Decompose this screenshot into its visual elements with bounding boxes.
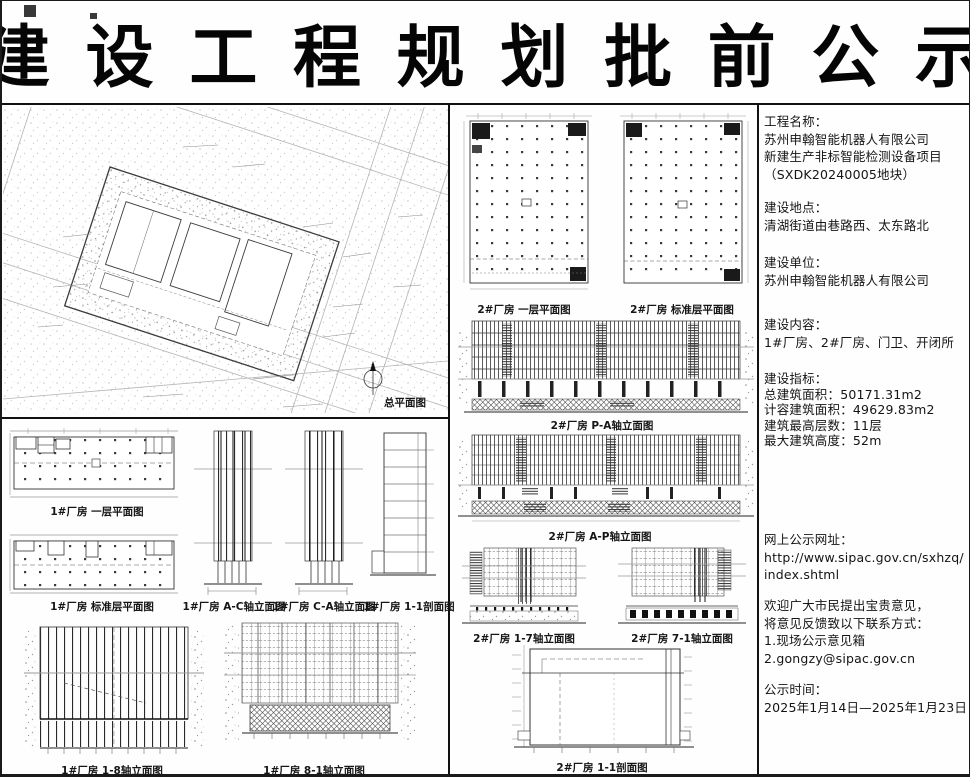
label-f2-plan-std: 2#厂房 标准层平面图	[630, 302, 734, 317]
info-block-feedback: 欢迎广大市民提出宝贵意见，将意见反馈致以下联系方式：1.现场公示意见箱2.gon…	[764, 597, 970, 667]
info-block-period: 公示时间：2025年1月14日—2025年1月23日	[764, 681, 970, 716]
f1-elevation-ac-drawing	[194, 425, 272, 597]
info-block-location: 建设地点：清湖街道由巷路西、太东路北	[764, 199, 970, 234]
text-line: 将意见反馈致以下联系方式：	[764, 615, 970, 633]
label-f1-plan-std: 1#厂房 标准层平面图	[50, 599, 154, 614]
label-f1-elev-18: 1#厂房 1-8轴立面图	[61, 763, 163, 777]
label-f1-elev-81: 1#厂房 8-1轴立面图	[263, 763, 365, 777]
f2-elevation-pa-drawing	[458, 317, 754, 417]
label-f1-elev-ac: 1#厂房 A-C轴立面图	[183, 599, 286, 614]
title-underline	[2, 103, 970, 105]
info-block-content: 建设内容：1#厂房、2#厂房、门卫、开闭所	[764, 316, 970, 351]
site-plan-drawing	[3, 107, 448, 413]
text-line: index.shtml	[764, 566, 970, 584]
divider-siteplan-bottom	[2, 417, 448, 419]
text-line: 清湖街道由巷路西、太东路北	[764, 217, 970, 235]
f2-elevation-ap-drawing	[458, 431, 754, 527]
text-line: 总建筑面积：50171.31m2	[764, 387, 970, 403]
text-line: 2025年1月14日—2025年1月23日	[764, 699, 970, 717]
text-line: 1#厂房、2#厂房、门卫、开闭所	[764, 334, 970, 352]
notice-poster: 建 设 工 程 规 划 批 前 公 示	[0, 0, 970, 777]
text-line: 苏州申翰智能机器人有限公司	[764, 272, 970, 290]
text-line: 公示时间：	[764, 681, 970, 699]
label-site-plan: 总平面图	[384, 395, 426, 410]
info-block-project-name: 工程名称：苏州申翰智能机器人有限公司新建生产非标智能检测设备项目（SXDK202…	[764, 113, 970, 183]
f1-elevation-81-drawing	[224, 619, 416, 759]
f2-elevation-71-drawing	[618, 544, 746, 626]
text-line: http://www.sipac.gov.cn/sxhzq/	[764, 549, 970, 567]
info-block-builder: 建设单位：苏州申翰智能机器人有限公司	[764, 254, 970, 289]
label-f2-elev-ap: 2#厂房 A-P轴立面图	[549, 529, 652, 544]
text-line: 最大建筑高度：52m	[764, 433, 970, 449]
divider-left-middle	[448, 105, 450, 777]
f1-first-floor-plan-drawing	[8, 425, 180, 503]
text-line: 计容建筑面积：49629.83m2	[764, 402, 970, 418]
text-line: 2.gongzy@sipac.gov.cn	[764, 650, 970, 668]
label-f1-section: 1#厂房 1-1剖面图	[363, 599, 454, 614]
info-block-indicators: 建设指标：总建筑面积：50171.31m2计容建筑面积：49629.83m2建筑…	[764, 371, 970, 449]
text-line: 建设单位：	[764, 254, 970, 272]
text-line: 工程名称：	[764, 113, 970, 131]
text-line: 建设内容：	[764, 316, 970, 334]
label-f2-plan-l1: 2#厂房 一层平面图	[477, 302, 570, 317]
text-line: 新建生产非标智能检测设备项目	[764, 148, 970, 166]
text-line: 建筑最高层数：11层	[764, 418, 970, 434]
label-f1-elev-ca: 1#厂房 C-A轴立面图	[272, 599, 375, 614]
label-f1-plan-l1: 1#厂房 一层平面图	[50, 504, 143, 519]
text-line: 欢迎广大市民提出宝贵意见，	[764, 597, 970, 615]
f2-elevation-17-drawing	[462, 544, 586, 626]
divider-middle-right	[757, 105, 759, 777]
page-title: 建 设 工 程 规 划 批 前 公 示	[2, 1, 969, 101]
f2-section-drawing	[494, 643, 710, 757]
text-line: 网上公示网址：	[764, 531, 970, 549]
f2-standard-floor-plan-drawing	[614, 111, 752, 301]
f1-elevation-18-drawing	[24, 621, 204, 759]
label-f2-section: 2#厂房 1-1剖面图	[556, 760, 647, 775]
text-line: （SXDK20240005地块）	[764, 166, 970, 184]
f1-standard-floor-plan-drawing	[8, 531, 180, 597]
text-line: 1.现场公示意见箱	[764, 632, 970, 650]
text-line: 建设地点：	[764, 199, 970, 217]
info-block-website: 网上公示网址：http://www.sipac.gov.cn/sxhzq/ind…	[764, 531, 970, 584]
text-line: 苏州申翰智能机器人有限公司	[764, 131, 970, 149]
f1-elevation-ca-drawing	[285, 425, 363, 597]
f1-section-drawing	[368, 425, 440, 597]
text-line: 建设指标：	[764, 371, 970, 387]
f2-first-floor-plan-drawing	[460, 111, 598, 301]
